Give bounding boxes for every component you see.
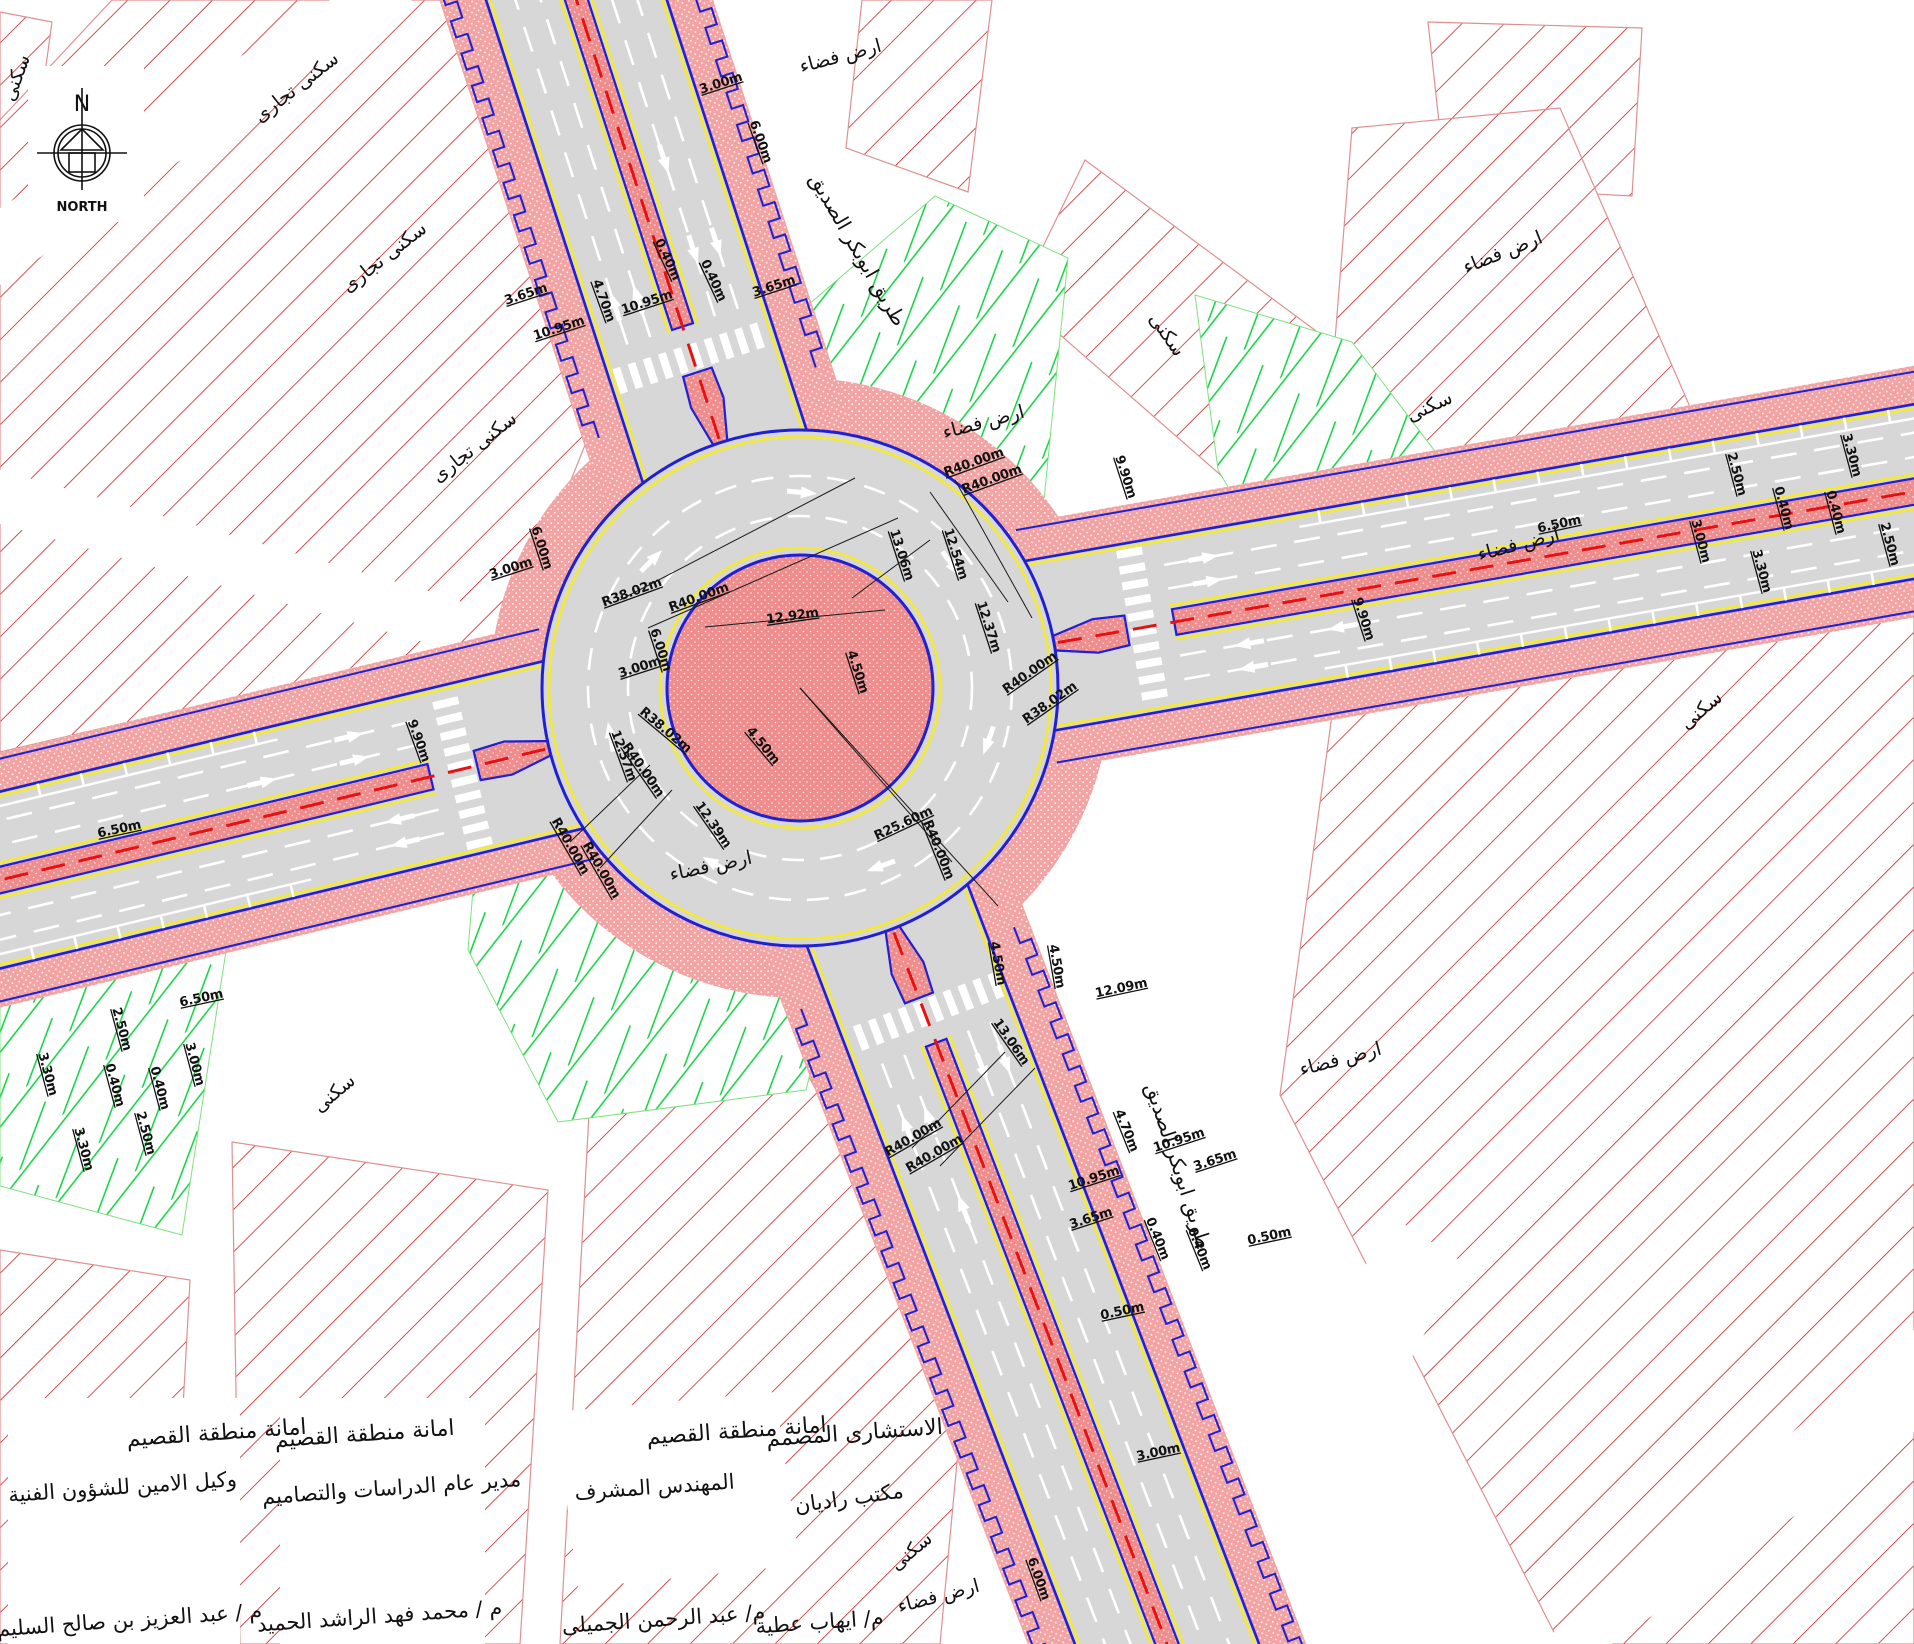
site-plan-svg: 3.00m6.00m3.65m3.65m0.40m0.40m4.70m10.95…	[0, 0, 1914, 1644]
compass-n-label: N	[74, 92, 90, 117]
compass-north-label: NORTH	[56, 200, 107, 215]
compass-clearing	[28, 66, 144, 222]
